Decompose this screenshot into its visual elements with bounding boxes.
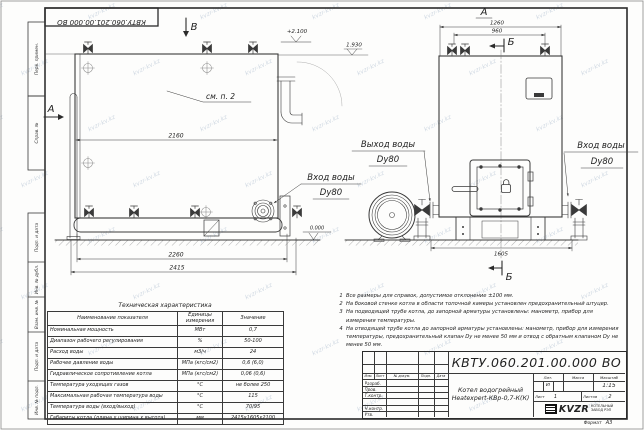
lit-value: И xyxy=(543,383,553,388)
sheets-value: 2 xyxy=(608,394,611,400)
param-name: Диапазон рабочего регулирования xyxy=(48,337,178,348)
sheets-label: Листов xyxy=(583,394,597,399)
param-units: МПа (кгс/см2) xyxy=(178,359,223,370)
note-item: 4На отводящей трубе котла до запорной ар… xyxy=(336,325,622,350)
table-row: Гидравлическое сопротивление котлаМПа (к… xyxy=(48,370,284,381)
format-word: Формат xyxy=(584,421,602,426)
param-name: Температура уходящих газов xyxy=(48,381,178,392)
param-value: 50-100 xyxy=(223,337,284,348)
inlet-valve-front xyxy=(562,200,587,241)
elevation-marks: +2.100 1.930 0.000 xyxy=(278,29,368,240)
stamp-vzam-inv: Взам. инв. № xyxy=(34,299,40,329)
doc-number-rotated: КВТУ.060.201.00.000 ВО xyxy=(57,18,146,26)
stamp-sprav-no: Справ. № xyxy=(34,122,40,143)
param-units: °С xyxy=(178,381,223,392)
stamp-podp-data-2: Подп. и дата xyxy=(34,342,40,372)
callout-labels: см. п. 2 Выход воды Dy80 Вход воды Dy80 … xyxy=(167,91,638,203)
section-b-top-letter: Б xyxy=(508,37,515,48)
param-name: Расход воды xyxy=(48,348,178,359)
table-row: Температура уходящих газов°Сне более 250 xyxy=(48,381,284,392)
table-row: Диапазон рабочего регулирования%50-100 xyxy=(48,337,284,348)
format-value: А3 xyxy=(606,420,613,426)
inlet-side-label-line1: Вход воды xyxy=(307,173,355,183)
tech-table: Наименование показателя Единицы измерени… xyxy=(47,311,284,425)
elev-top-text: +2.100 xyxy=(287,29,308,35)
dim-1605-text: 1605 xyxy=(494,252,508,258)
furnace-door xyxy=(452,160,533,216)
ground-line xyxy=(55,240,578,246)
elev-mid-text: 1.930 xyxy=(346,43,362,49)
section-b-bottom-letter: Б xyxy=(506,272,513,283)
param-value: 115 xyxy=(223,392,284,403)
param-name: Габариты котла (длина х ширина х высота) xyxy=(48,414,178,425)
dim-2415-text: 2415 xyxy=(169,265,184,272)
note-item: 3На подводящей трубе котла, до запорной … xyxy=(336,308,622,324)
table-row: Температура воды (вход/выход)°С70/95 xyxy=(48,403,284,414)
tech-table-title: Техническая характеристика xyxy=(47,300,283,311)
elev-zero-text: 0.000 xyxy=(310,226,324,232)
table-row: Максимальная рабочая температура воды°С1… xyxy=(48,392,284,403)
sheet-label: Лист xyxy=(535,394,545,399)
lit-label: Лит. xyxy=(533,375,563,380)
door-latch-icon xyxy=(502,180,511,193)
drawing-sheet: kvzr-kv.kzkvzr-kv.kzkvzr-kv.kzkvzr-kv.kz… xyxy=(0,0,644,430)
note-text: Все размеры для справок, допустимое откл… xyxy=(346,292,622,300)
scale-value: 1:15 xyxy=(593,383,625,388)
front-view xyxy=(414,44,587,258)
table-row: Номинальная мощностьМВт0,7 xyxy=(48,326,284,337)
note-number: 3 xyxy=(336,308,346,324)
dim-960-text: 960 xyxy=(492,29,503,35)
inlet-flange xyxy=(252,200,274,222)
param-value: 0,6 (6,0) xyxy=(223,359,284,370)
col-header-units: Единицы измерения xyxy=(178,312,223,326)
param-value: 0,06 (0,6) xyxy=(223,370,284,381)
stamp-podp-data-1: Подп. и дата xyxy=(34,223,40,253)
logo-text: KVZR xyxy=(559,404,589,415)
table-row: Габариты котла (длина х ширина х высота)… xyxy=(48,414,284,425)
notes-list: 1Все размеры для справок, допустимое отк… xyxy=(336,292,622,349)
param-value: 0,7 xyxy=(223,326,284,337)
param-value: 24 xyxy=(223,348,284,359)
note-item: 2На боковой стенке котла в области топоч… xyxy=(336,300,622,308)
dimensions: 2160 2260 2415 1260 960 1605 xyxy=(71,21,572,276)
frame-stamps: Перв. примен. Справ. № Подп. и дата Инв.… xyxy=(28,22,45,419)
title-block: Изм. Лист № докум. Подп. Дата Разраб. Пр… xyxy=(362,351,627,419)
see-note-label: см. п. 2 xyxy=(206,92,235,101)
param-value: не более 250 xyxy=(223,381,284,392)
rev-col-izm: Изм. xyxy=(363,374,374,379)
note-text: На отводящей трубе котла до запорной арм… xyxy=(346,325,622,350)
dim-2160-text: 2160 xyxy=(168,133,183,140)
table-row: Расход водым3/ч24 xyxy=(48,348,284,359)
param-name: Гидравлическое сопротивление котла xyxy=(48,370,178,381)
inlet-front-label-line1: Вход воды xyxy=(577,141,625,151)
note-item: 1Все размеры для справок, допустимое отк… xyxy=(336,292,622,300)
table-row: Рабочее давление водыМПа (кгс/см2)0,6 (6… xyxy=(48,359,284,370)
outlet-label-line1: Выход воды xyxy=(361,140,415,150)
dim-1260-text: 1260 xyxy=(490,21,504,27)
company-logo: KVZR КОТЕЛЬНЫЙ ЗАВОД РЭП xyxy=(533,401,625,417)
note-number: 4 xyxy=(336,325,346,350)
rev-col-data: Дата xyxy=(434,374,448,379)
param-units: МПа (кгс/см2) xyxy=(178,370,223,381)
note-text: На подводящей трубе котла, до запорной а… xyxy=(346,308,622,324)
stamp-perv-primen: Перв. примен. xyxy=(34,43,40,75)
product-name: Котел водогрейный Heatexpert-КВр-0,7-К(К… xyxy=(448,373,533,417)
param-units: °С xyxy=(178,392,223,403)
param-value: 70/95 xyxy=(223,403,284,414)
dim-2260-text: 2260 xyxy=(168,252,183,259)
mass-label: Масса xyxy=(563,375,593,380)
row-prov: Пров. xyxy=(365,387,387,392)
tech-characteristics: Техническая характеристика Наименование … xyxy=(47,300,283,425)
note-number: 2 xyxy=(336,300,346,308)
row-tkontr: Т.контр. xyxy=(365,393,387,398)
view-a-label-top: А xyxy=(480,7,488,18)
stamp-inv-dubl: Инв. № дубл. xyxy=(34,265,40,294)
rev-col-list: Лист xyxy=(374,374,386,379)
kvzr-logo-icon xyxy=(545,404,557,414)
sheet-value: 1 xyxy=(554,394,557,400)
param-name: Температура воды (вход/выход) xyxy=(48,403,178,414)
note-number: 1 xyxy=(336,292,346,300)
side-view xyxy=(46,42,342,240)
chimney-stub xyxy=(277,62,342,125)
outlet-label-line2: Dy80 xyxy=(377,155,399,165)
stamp-inv-podl: Инв. № подл. xyxy=(34,385,40,415)
product-name-line2: Heatexpert-КВр-0,7-К(К) xyxy=(452,395,530,403)
inlet-front-label-line2: Dy80 xyxy=(591,157,613,167)
view-a-letter-left: А xyxy=(47,104,55,115)
row-nkontr: Н.контр. xyxy=(365,406,387,411)
scale-label: Масштаб xyxy=(593,375,625,380)
col-header-value: Значение xyxy=(223,312,284,326)
param-name: Рабочее давление воды xyxy=(48,359,178,370)
sheets-cell: Листов 2 xyxy=(583,394,625,400)
param-units: м3/ч xyxy=(178,348,223,359)
param-units: МВт xyxy=(178,326,223,337)
param-name: Номинальная мощность xyxy=(48,326,178,337)
param-name: Максимальная рабочая температура воды xyxy=(48,392,178,403)
param-value: 2415х1605х2100 xyxy=(223,414,284,425)
format-label: Формат А3 xyxy=(558,420,638,426)
param-units: % xyxy=(178,337,223,348)
outlet-valve xyxy=(414,200,439,241)
door-handle xyxy=(452,187,478,192)
param-units: °С xyxy=(178,403,223,414)
view-b-letter: В xyxy=(191,22,198,33)
company-name-line2: ЗАВОД РЭП xyxy=(591,409,613,413)
tech-header-row: Наименование показателя Единицы измерени… xyxy=(48,312,284,326)
company-name: КОТЕЛЬНЫЙ ЗАВОД РЭП xyxy=(591,405,613,413)
product-name-line1: Котел водогрейный xyxy=(458,387,523,395)
row-utv: Утв. xyxy=(365,412,387,417)
sheet-cell: Лист 1 xyxy=(535,394,581,400)
param-units: мм xyxy=(178,414,223,425)
note-text: На боковой стенке котла в области топочн… xyxy=(346,300,622,308)
col-header-name: Наименование показателя xyxy=(48,312,178,326)
rev-col-docnum: № докум. xyxy=(386,374,418,379)
rev-col-podp: Подп. xyxy=(418,374,434,379)
row-razrab: Разраб. xyxy=(365,381,387,386)
titleblock-doc-number: КВТУ.060.201.00.000 ВО xyxy=(448,352,625,373)
inlet-side-label-line2: Dy80 xyxy=(320,188,342,198)
flue-fan xyxy=(369,192,415,242)
